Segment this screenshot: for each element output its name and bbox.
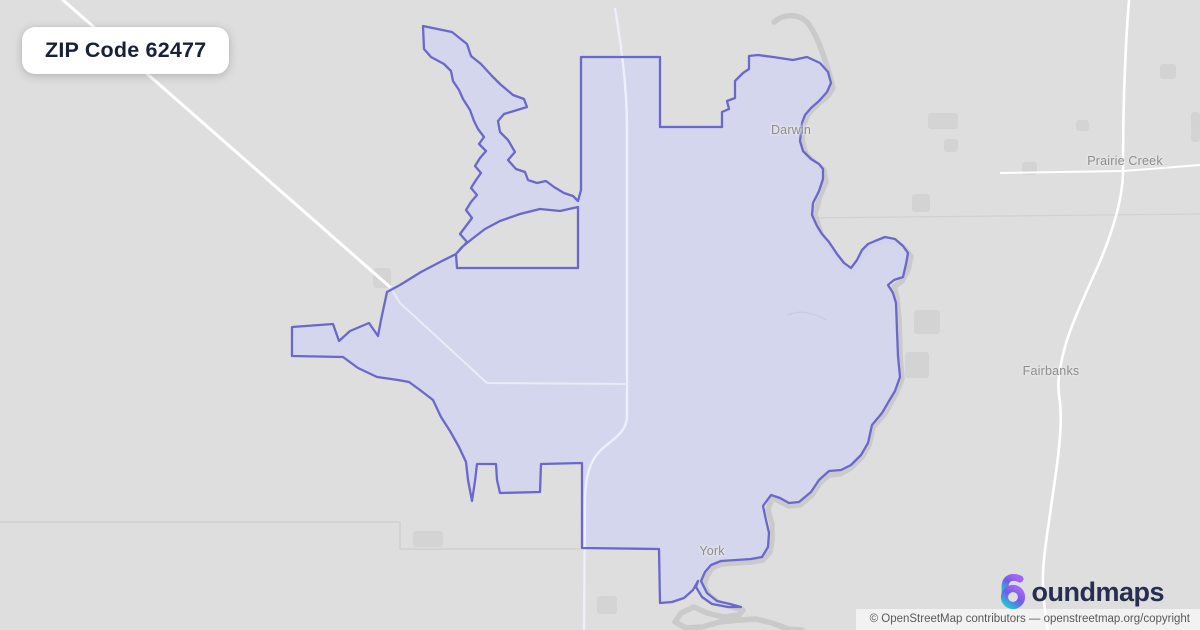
osm-attribution-text[interactable]: © OpenStreetMap contributors — openstree…	[870, 613, 1190, 625]
map-canvas[interactable]: Darwin Prairie Creek Fairbanks York ZIP …	[0, 0, 1200, 630]
place-label-prairie-creek: Prairie Creek	[1087, 154, 1163, 168]
place-label-fairbanks: Fairbanks	[1023, 364, 1080, 378]
boundmaps-b-icon	[998, 574, 1030, 610]
place-label-york: York	[699, 544, 724, 558]
map-layers	[0, 0, 1200, 630]
osm-attribution[interactable]: © OpenStreetMap contributors — openstree…	[856, 609, 1200, 630]
boundmaps-logo: oundmaps	[998, 574, 1164, 610]
zip-code-badge: ZIP Code 62477	[22, 27, 229, 74]
zip-code-title: ZIP Code 62477	[45, 38, 206, 62]
place-label-darwin: Darwin	[771, 123, 811, 137]
boundmaps-wordmark: oundmaps	[1031, 579, 1164, 606]
